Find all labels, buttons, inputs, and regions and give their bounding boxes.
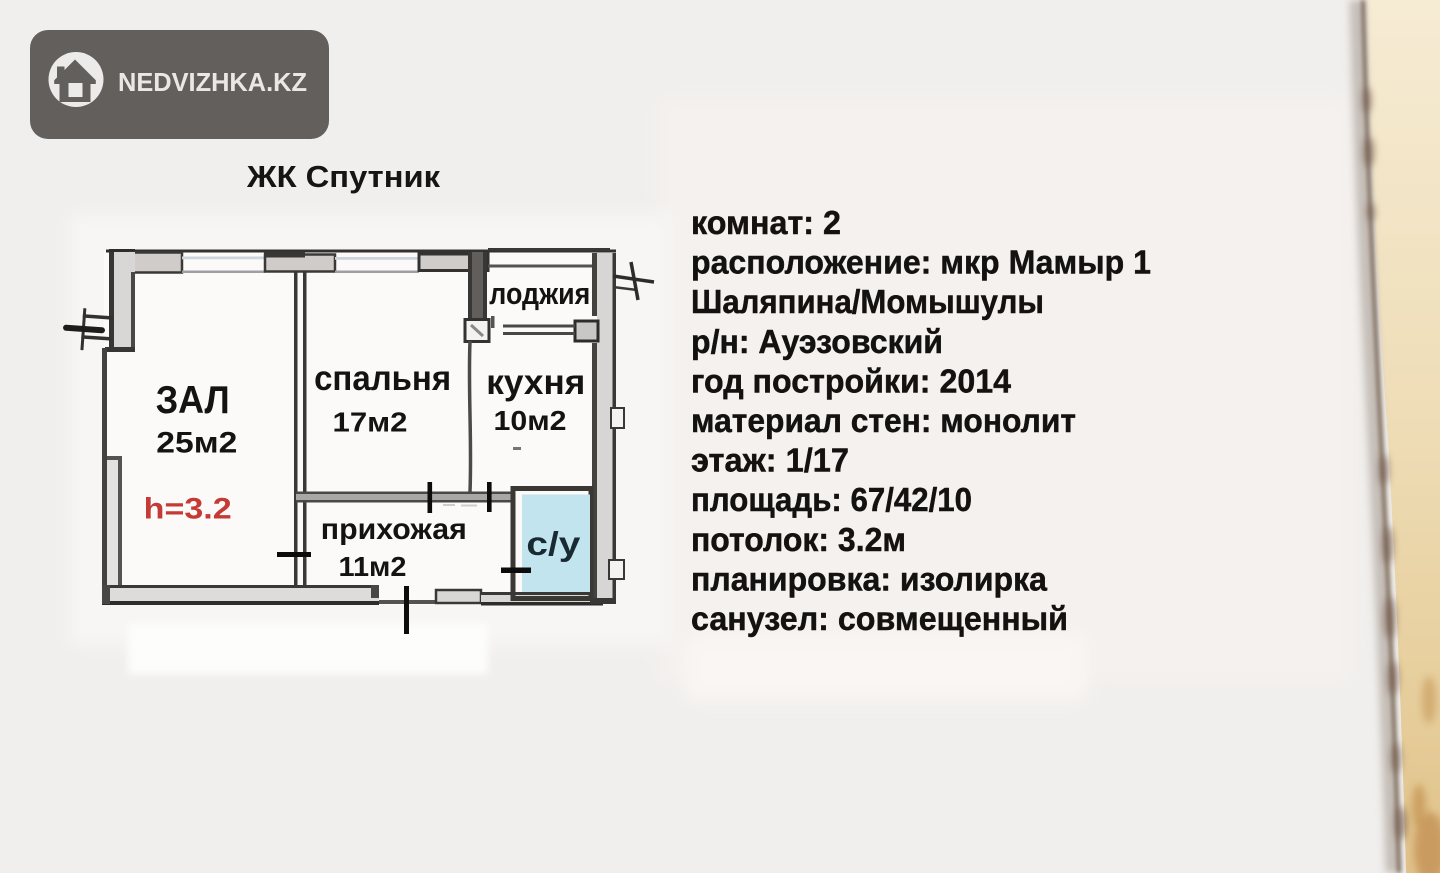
- svg-text:17м2: 17м2: [333, 407, 408, 438]
- svg-text:10м2: 10м2: [494, 405, 567, 436]
- svg-text:h=3.2: h=3.2: [144, 493, 232, 526]
- svg-text:лоджия: лоджия: [489, 276, 590, 311]
- svg-text:спальня: спальня: [314, 359, 451, 398]
- svg-text:кухня: кухня: [486, 362, 585, 402]
- svg-text:ЗАЛ: ЗАЛ: [156, 379, 230, 422]
- svg-text:с/у: с/у: [526, 525, 581, 562]
- svg-text:25м2: 25м2: [156, 427, 237, 460]
- svg-text:прихожая: прихожая: [321, 513, 467, 546]
- svg-text:11м2: 11м2: [339, 551, 407, 582]
